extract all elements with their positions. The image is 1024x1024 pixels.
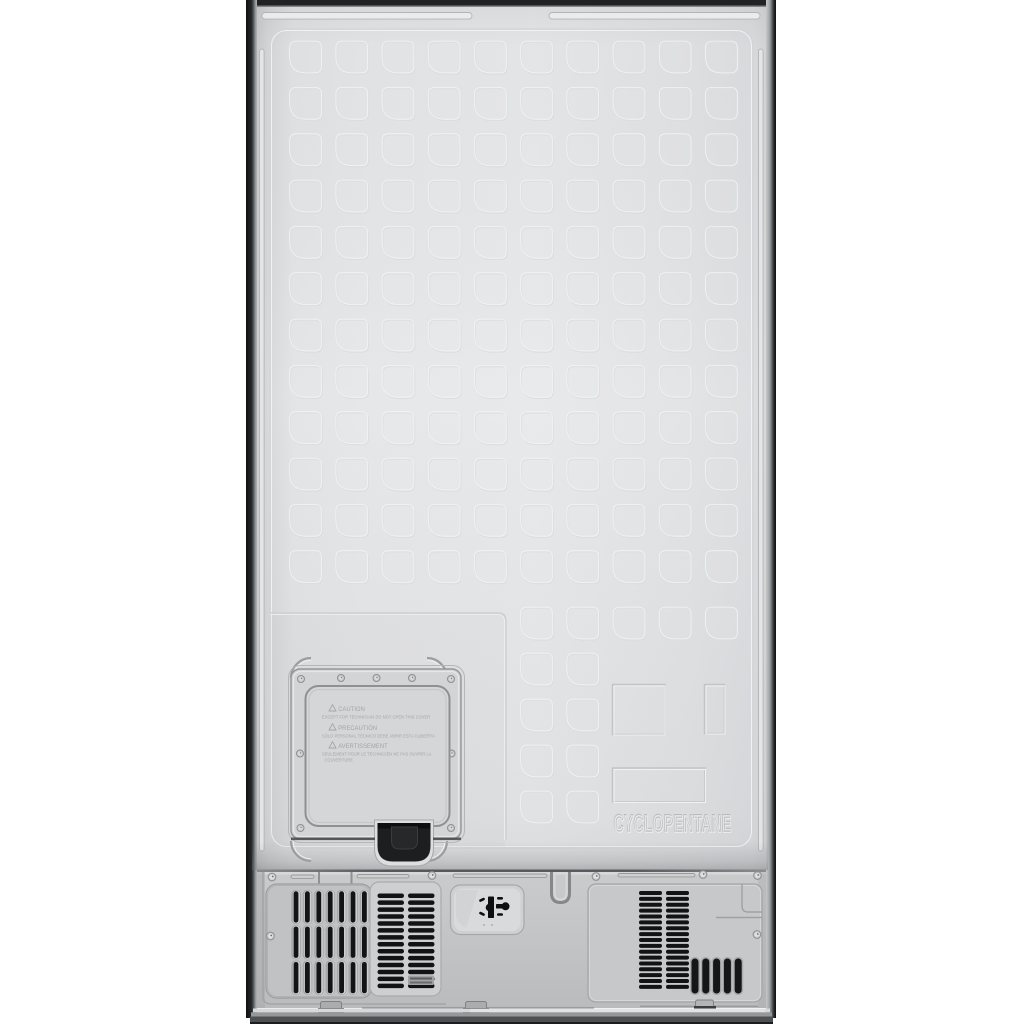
svg-text:SEULEMENT POUR LE TECHNICIEN N: SEULEMENT POUR LE TECHNICIEN NE PAS OUVR…	[322, 751, 432, 756]
svg-text:CYCLOPENTANE: CYCLOPENTANE	[614, 812, 732, 839]
svg-text:AVERTISSEMENT: AVERTISSEMENT	[338, 743, 388, 750]
svg-text:EXCEPT FOR TECHNICIAN DO NOT O: EXCEPT FOR TECHNICIAN DO NOT OPEN THIS C…	[322, 714, 430, 719]
svg-text:PRECAUTIÓN: PRECAUTIÓN	[338, 725, 377, 732]
svg-text:CAUTION: CAUTION	[338, 706, 365, 713]
svg-text:COUVERTURE: COUVERTURE	[324, 757, 353, 762]
svg-text:SÓLO PERSONAL TÉCNICO DEBE ABR: SÓLO PERSONAL TÉCNICO DEBE ABRIR ESTA CU…	[322, 733, 435, 738]
